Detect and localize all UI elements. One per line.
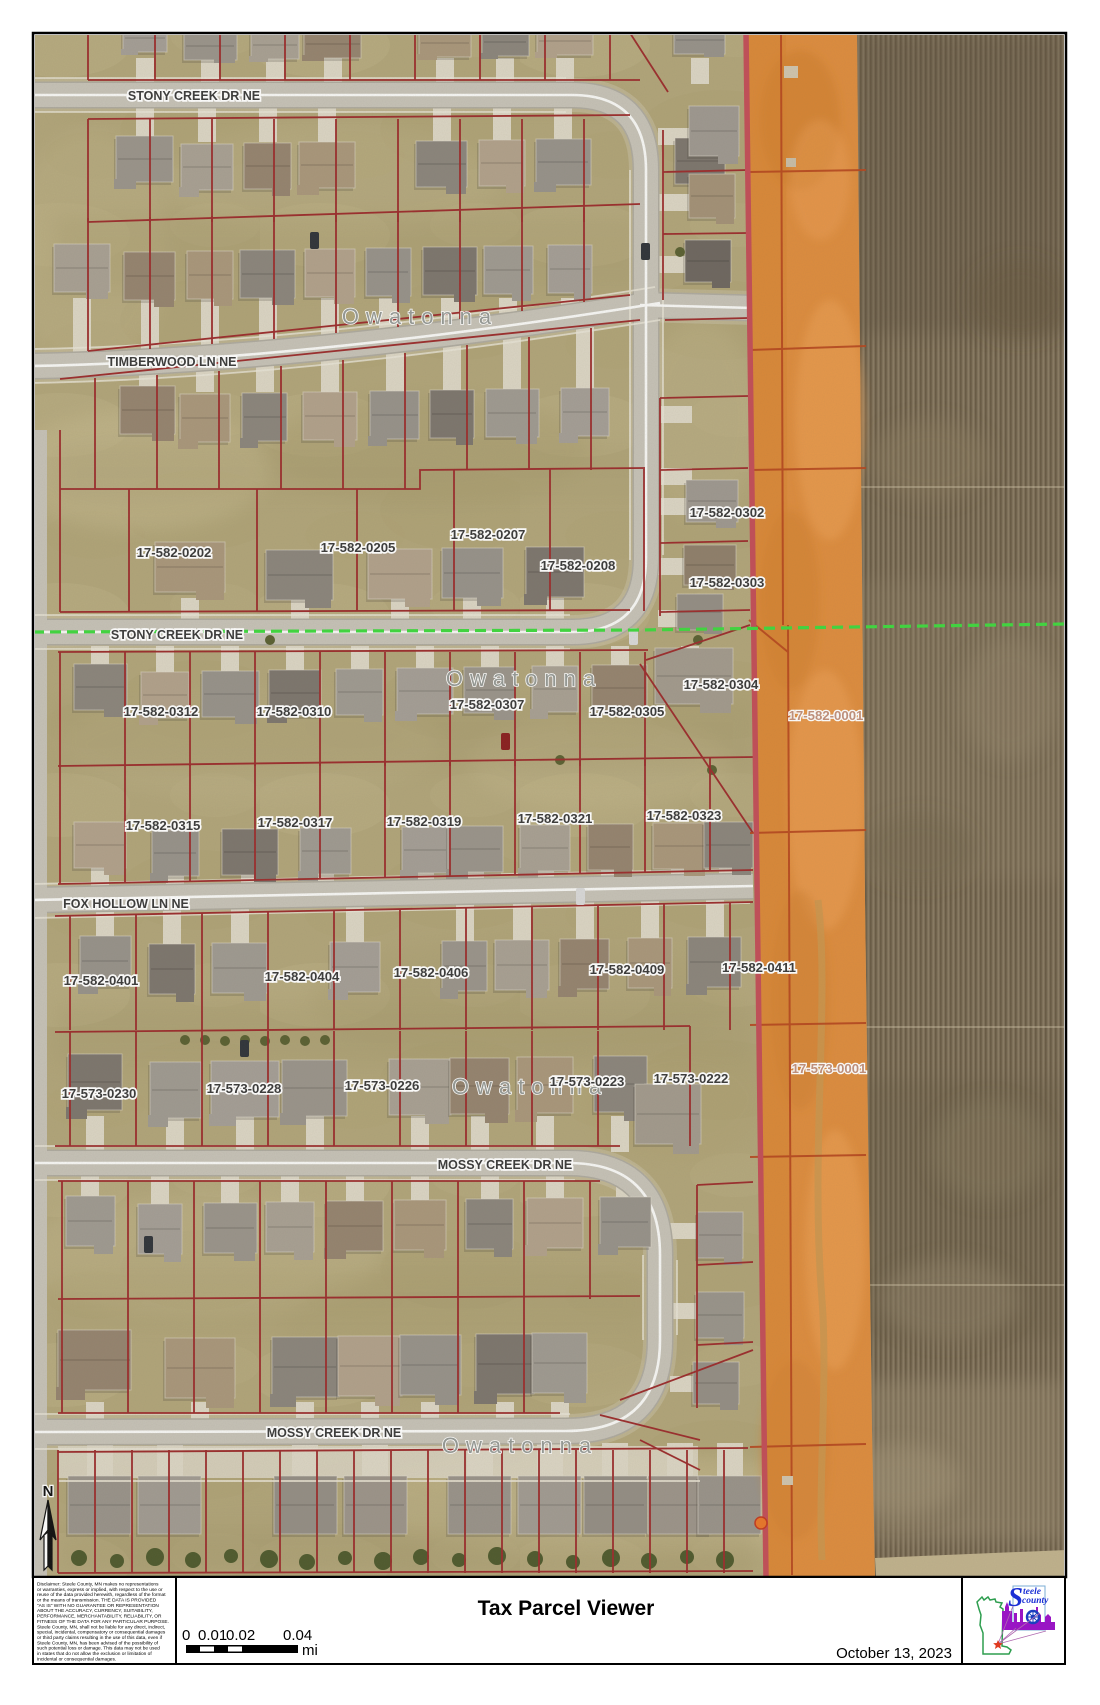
- svg-text:0: 0: [182, 1627, 190, 1644]
- svg-text:Disclaimer: Steele County, MN: Disclaimer: Steele County, MN makes no r…: [37, 1582, 159, 1588]
- svg-text:0.02: 0.02: [226, 1627, 255, 1644]
- svg-text:mi: mi: [302, 1642, 318, 1659]
- svg-text:such potential loss or damage.: such potential loss or damage. This data…: [37, 1646, 160, 1652]
- svg-text:incidental or consequential da: incidental or consequential damages.: [37, 1656, 116, 1662]
- svg-text:ABOUT THE ACCURACY, CURRENCY,: ABOUT THE ACCURACY, CURRENCY, SUITABILIT…: [37, 1608, 153, 1614]
- svg-text:Steele County, MN, shall not b: Steele County, MN, shall not be liable f…: [37, 1624, 165, 1630]
- svg-text:county: county: [1022, 1596, 1049, 1606]
- svg-text:or the means of transmission.: or the means of transmission. THE DATA I…: [37, 1598, 157, 1604]
- svg-text:PERFORMANCE, MERCHANTABILITY,: PERFORMANCE, MERCHANTABILITY, RELIABILIT…: [37, 1614, 162, 1620]
- svg-text:reuse of the data provided her: reuse of the data provided herewith, reg…: [37, 1592, 166, 1598]
- svg-text:Tax Parcel Viewer: Tax Parcel Viewer: [478, 1597, 655, 1620]
- svg-text:or third party claims resultin: or third party claims resulting in the u…: [37, 1635, 163, 1641]
- svg-text:October 13, 2023: October 13, 2023: [836, 1645, 952, 1662]
- svg-text:“AS IS” WITH NO GUARANTEE OR R: “AS IS” WITH NO GUARANTEE OR REPRESENTAT…: [37, 1603, 159, 1609]
- svg-text:or warranties, express or impl: or warranties, express or implied, with …: [37, 1587, 163, 1593]
- svg-text:S: S: [1008, 1582, 1023, 1612]
- svg-text:0.01: 0.01: [198, 1627, 227, 1644]
- svg-text:Steele County, MN, has been ad: Steele County, MN, has been advised of t…: [37, 1640, 159, 1646]
- svg-text:FITNESS OF THE DATA FOR ANY PA: FITNESS OF THE DATA FOR ANY PARTICULAR P…: [37, 1619, 169, 1625]
- svg-text:special, incidental, compensat: special, incidental, compensatory or con…: [37, 1630, 166, 1636]
- svg-text:in states that do not allow th: in states that do not allow the exclusio…: [37, 1651, 152, 1657]
